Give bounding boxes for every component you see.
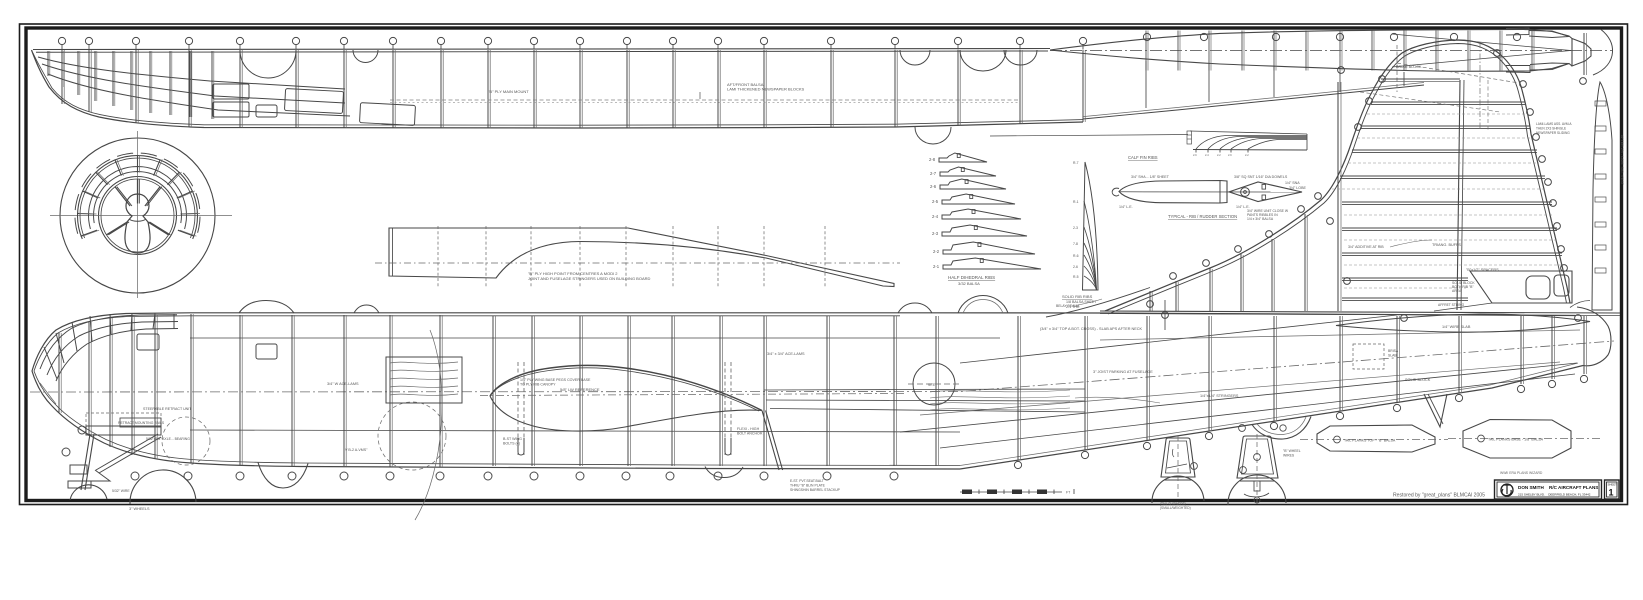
svg-text:FLEXI - HIGH: FLEXI - HIGH [737,427,760,431]
svg-text:2-4: 2-4 [1205,153,1209,157]
svg-text:RETRACT MOUNTING RAILS: RETRACT MOUNTING RAILS [118,421,165,425]
svg-text:BRIAR BLOCK: BRIAR BLOCK [1396,65,1422,69]
svg-text:CALF FIN RIBS: CALF FIN RIBS [1128,155,1158,160]
svg-text:3/32 BALSA: 3/32 BALSA [958,281,980,286]
svg-text:THEN 2X3 SHINGLE: THEN 2X3 SHINGLE [1536,127,1566,131]
svg-text:215 SHELBY BLVD. DEERFIELD: 215 SHELBY BLVD. DEERFIELD BEACH, FL 334… [1518,493,1591,497]
svg-text:BOLTS (4): BOLTS (4) [503,441,520,445]
svg-text:2-3: 2-3 [1073,226,1078,230]
svg-text:DON SMITH: DON SMITH [1518,485,1544,490]
svg-text:2-2: 2-2 [1245,153,1249,157]
svg-text:NEWSPAPER SLIDING: NEWSPAPER SLIDING [1536,131,1570,135]
svg-text:BRISA: BRISA [1388,349,1399,353]
svg-text:SOLID RIB RIBS: SOLID RIB RIBS [1062,294,1093,299]
svg-text:2-6: 2-6 [1193,153,1197,157]
svg-text:2-7: 2-7 [930,171,937,176]
svg-text:R-5: R-5 [1073,275,1079,279]
svg-text:1/4"x1/4" STRINGERS: 1/4"x1/4" STRINGERS [1200,394,1239,398]
svg-text:5/8" LW REFERENCE: 5/8" LW REFERENCE [560,387,600,392]
svg-text:HALF DIHEDRAL RIBS: HALF DIHEDRAL RIBS [948,275,995,280]
svg-text:B-ST WING: B-ST WING [503,437,522,441]
svg-text:2-6: 2-6 [1073,265,1078,269]
svg-text:BELAY BEAMS: BELAY BEAMS [1056,304,1080,308]
svg-text:2-5: 2-5 [932,199,939,204]
svg-text:SLAB: SLAB [1388,353,1397,357]
svg-text:AFTER 2% - LAMI. SIG. 4"EST: AFTER 2% - LAMI. SIG. 4"EST [1620,135,1624,186]
svg-text:V B-2 A-VMS": V B-2 A-VMS" [345,448,368,452]
svg-text:3" JOIST PARKING AT FUSELAGE: 3" JOIST PARKING AT FUSELAGE [1093,370,1153,374]
svg-text:SHINGSHIN BARREL STACKUP: SHINGSHIN BARREL STACKUP [790,488,841,492]
svg-text:"B"x1/2" SPACERS: "B"x1/2" SPACERS [1466,268,1499,272]
svg-text:3" WHEELS: 3" WHEELS [129,507,150,511]
svg-text:E-ST. PVT.SEAT.BALT: E-ST. PVT.SEAT.BALT [790,479,824,483]
svg-text:TO PLY RIB CANOPY: TO PLY RIB CANOPY [520,382,556,386]
svg-text:2-2: 2-2 [933,249,940,254]
svg-text:2-1: 2-1 [933,264,940,269]
svg-text:R/C AIRCRAFT PLANS: R/C AIRCRAFT PLANS [1549,485,1598,490]
svg-text:"B" WHEEL: "B" WHEEL [1283,449,1301,453]
svg-text:2-3: 2-3 [932,231,939,236]
svg-text:LAMI-LAMS ASS. AVM.A: LAMI-LAMS ASS. AVM.A [1536,122,1572,126]
svg-text:(SMALL/WEIGHTED): (SMALL/WEIGHTED) [1160,506,1191,510]
svg-text:WWII ERA PLANS WIZARD: WWII ERA PLANS WIZARD [1500,471,1543,475]
svg-text:JOINT AND FUSELAGE STRINGERS U: JOINT AND FUSELAGE STRINGERS USED ON BUI… [528,276,651,281]
svg-text:Restored by "great_plans" BLMC: Restored by "great_plans" BLMCAl 2005 [1393,493,1485,499]
svg-text:R-7: R-7 [1073,161,1079,165]
svg-text:R-6: R-6 [1073,254,1079,258]
svg-text:1/4" PLY WING BASE PEGS COVER: 1/4" PLY WING BASE PEGS COVER BASE [520,378,591,382]
svg-text:FT: FT [1066,491,1070,495]
svg-text:AREA: AREA [1452,289,1462,293]
svg-text:3/8" SQ SNT 1/16" DIA DOWEL: 3/8" SQ SNT 1/16" DIA DOWELS [1234,175,1288,179]
svg-text:5/32"x5/8" AXLE... BEARING: 5/32"x5/8" AXLE... BEARING [146,437,190,441]
svg-text:STEERABLE RETRACT UNIT: STEERABLE RETRACT UNIT [143,407,192,411]
svg-text:5/32" WIRE: 5/32" WIRE [112,489,130,493]
svg-text:1/4" L.E.: 1/4" L.E. [1119,205,1133,209]
svg-text:3/4" LOBE: 3/4" LOBE [1289,186,1306,190]
svg-text:AFFRET STRING: AFFRET STRING [1438,303,1465,307]
svg-text:TYPICAL - RIB / RUDDER SECTIO: TYPICAL - RIB / RUDDER SECTION [1168,214,1237,219]
svg-text:SHEET: SHEET [1608,483,1618,487]
svg-text:2-6: 2-6 [930,184,937,189]
svg-text:TAIL PLANKS BASE - 1/8" BALSA: TAIL PLANKS BASE - 1/8" BALSA [1488,438,1544,442]
svg-text:2-8: 2-8 [929,157,936,162]
svg-text:(3/4" x 3/4" TOP A BOT. CROSS): (3/4" x 3/4" TOP A BOT. CROSS) - SLAB AP… [1040,327,1143,331]
svg-text:3/4" SHA... 1/8" SHEET: 3/4" SHA... 1/8" SHEET [1131,175,1170,179]
svg-text:1/4 x 3/4" BALSA: 1/4 x 3/4" BALSA [1247,217,1274,221]
svg-text:2-2: 2-2 [1217,153,1221,157]
svg-text:BOLT ANCHOR: BOLT ANCHOR [737,431,763,435]
svg-text:3/4" W ACE-LAMS: 3/4" W ACE-LAMS [327,382,359,386]
svg-text:1: 1 [1609,488,1614,498]
svg-text:3/4" ADDITIVE AT RIB: 3/4" ADDITIVE AT RIB [1348,245,1384,249]
svg-text:TAIL PLANKS TOP - "B" BALSA: TAIL PLANKS TOP - "B" BALSA [1344,439,1396,443]
svg-text:"B" PLY MAIN MOUNT: "B" PLY MAIN MOUNT [488,89,529,94]
svg-text:R-1: R-1 [1073,200,1079,204]
svg-text:3/4" x 3/4" ACE-LAMS: 3/4" x 3/4" ACE-LAMS [767,352,805,356]
svg-text:TRIANG. BUFFS: TRIANG. BUFFS [1432,243,1461,247]
svg-text:7-8: 7-8 [1073,242,1078,246]
svg-text:THRU "B" BLIN PLATE: THRU "B" BLIN PLATE [790,483,826,487]
svg-text:LAMI THICKENED NEWSPAPER BLOCK: LAMI THICKENED NEWSPAPER BLOCKS [727,87,805,92]
svg-text:1/4" WIRE SLAB: 1/4" WIRE SLAB [1442,325,1471,329]
svg-text:2-4: 2-4 [932,214,939,219]
svg-text:1/4" SNA: 1/4" SNA [1285,181,1300,185]
svg-text:WIRES: WIRES [1283,453,1295,457]
svg-text:2-6: 2-6 [1228,153,1232,157]
svg-text:SITE: SITE [928,383,935,387]
